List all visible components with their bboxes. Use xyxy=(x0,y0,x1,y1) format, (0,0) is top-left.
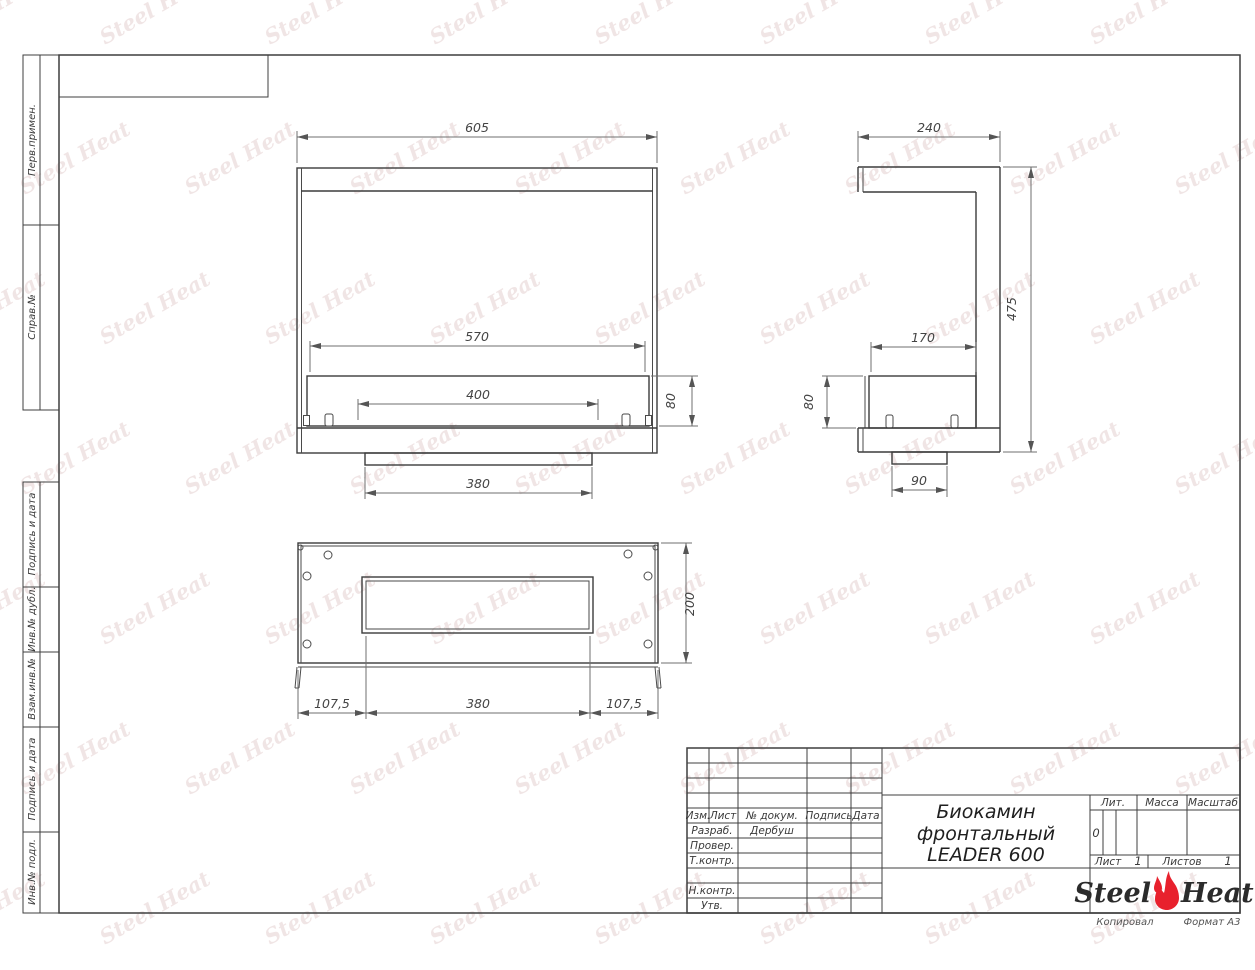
watermark-text: Steel Heat xyxy=(0,266,50,349)
dim-plan-offset-left: 107,5 xyxy=(314,696,350,711)
sheets-label: Листов xyxy=(1161,856,1201,868)
watermark-text: Steel Heat xyxy=(675,416,795,499)
row-razrab-label: Разраб. xyxy=(691,825,732,837)
side-burner-tray xyxy=(869,376,976,428)
mount-hole xyxy=(324,551,332,559)
watermark-text: Steel Heat xyxy=(755,566,875,649)
logo-heat: Heat xyxy=(1180,878,1254,909)
dim-plan-opening: 380 xyxy=(466,696,490,711)
watermark-text: Steel Heat xyxy=(0,566,50,649)
burner-clip xyxy=(886,415,893,428)
dim-side-height: 475 xyxy=(1004,297,1019,321)
col-izm: Изм. xyxy=(686,810,711,822)
watermark-text: Steel Heat xyxy=(345,716,465,799)
watermark-text: Steel Heat xyxy=(755,266,875,349)
frame-border xyxy=(59,55,1240,913)
watermark-text: Steel Heat xyxy=(345,116,465,199)
sheets-value: 1 xyxy=(1224,854,1231,868)
margin-box: Перв.примен. xyxy=(23,55,59,225)
dim-front-base: 380 xyxy=(466,476,490,491)
watermark-text: Steel Heat xyxy=(1170,116,1255,199)
margin-box: Справ.№ xyxy=(23,225,59,410)
dim-side-depth: 240 xyxy=(917,120,941,135)
watermark-text: Steel Heat xyxy=(590,266,710,349)
mount-hole xyxy=(624,550,632,558)
watermark-text: Steel Heat xyxy=(95,0,215,49)
watermark-text: Steel Heat xyxy=(675,716,795,799)
watermark-text: Steel Heat xyxy=(1005,716,1125,799)
dim-plan-offset-right: 107,5 xyxy=(606,696,642,711)
dim-front-tray-height: 80 xyxy=(663,393,678,409)
dim-side-tray-height: 80 xyxy=(801,394,816,410)
margin-box-label: Справ.№ xyxy=(27,294,38,339)
dim-front-inner-width: 570 xyxy=(465,329,489,344)
margin-box: Инв.№ дубл. xyxy=(23,586,59,652)
watermark-text: Steel Heat xyxy=(920,866,1040,949)
sheet-frame xyxy=(59,55,1240,913)
watermark-text: Steel Heat xyxy=(260,0,380,49)
sheet-label: Лист xyxy=(1094,856,1122,868)
watermark-text: Steel Heat xyxy=(755,866,875,949)
watermark-text: Steel Heat xyxy=(1250,0,1255,49)
doc-title-line2: фронтальный xyxy=(917,823,1055,845)
copied-label: Копировал xyxy=(1096,917,1154,928)
burner-clip xyxy=(951,415,958,428)
watermark-text: Steel Heat xyxy=(260,266,380,349)
row-nkontr-label: Н.контр. xyxy=(689,885,736,897)
watermark-text: Steel Heat xyxy=(590,866,710,949)
watermark-text: Steel Heat xyxy=(180,416,300,499)
col-podpis: Подпись xyxy=(805,810,852,822)
watermark-text: Steel Heat xyxy=(15,416,135,499)
watermark-text: Steel Heat xyxy=(180,716,300,799)
dim-side-tray-depth: 170 xyxy=(911,330,935,345)
burner-clip xyxy=(622,414,630,426)
mount-hole xyxy=(644,640,652,648)
watermark-text: Steel Heat xyxy=(1085,566,1205,649)
drawing-sheet: Steel HeatSteel HeatSteel HeatSteel Heat… xyxy=(0,0,1255,970)
doc-title-line3: LEADER 600 xyxy=(927,844,1045,866)
watermark-text: Steel Heat xyxy=(1170,416,1255,499)
frame-top-left-box xyxy=(59,55,268,97)
watermark-text: Steel Heat xyxy=(1005,116,1125,199)
margin-box: Взам.инв.№ xyxy=(23,652,59,727)
margin-box-label: Взам.инв.№ xyxy=(27,658,38,720)
watermark-text: Steel Heat xyxy=(425,866,545,949)
sheet-value: 1 xyxy=(1134,854,1141,868)
flame-icon-small xyxy=(1154,876,1162,893)
watermark-text: Steel Heat xyxy=(510,116,630,199)
lit-value: 0 xyxy=(1092,826,1099,840)
mount-hole xyxy=(303,572,311,580)
row-prover-label: Провер. xyxy=(690,840,734,852)
watermark-text: Steel Heat xyxy=(0,0,50,49)
watermark-text: Steel Heat xyxy=(425,566,545,649)
margin-box-label: Инв.№ подл. xyxy=(27,839,38,905)
dim-plan-depth: 200 xyxy=(682,592,697,616)
margin-box-label: Подпись и дата xyxy=(27,738,38,821)
col-list: Лист xyxy=(709,810,737,822)
dim-front-burner: 400 xyxy=(466,387,490,402)
doc-title-line1: Биокамин xyxy=(936,801,1035,823)
margin-box-label: Подпись и дата xyxy=(27,493,38,576)
col-data: Дата xyxy=(851,810,879,822)
mount-hole xyxy=(303,640,311,648)
watermark-text: Steel Heat xyxy=(95,266,215,349)
watermark-text: Steel Heat xyxy=(1170,716,1255,799)
margin-box-label: Перв.примен. xyxy=(27,104,38,176)
col-ndocum: № докум. xyxy=(745,810,798,822)
title-block: Изм. Лист № докум. Подпись Дата Разраб. … xyxy=(686,748,1255,913)
watermark-text: Steel Heat xyxy=(755,0,875,49)
watermark-text: Steel Heat xyxy=(675,116,795,199)
watermark-text: Steel Heat xyxy=(920,266,1040,349)
format-label: Формат А3 xyxy=(1184,917,1241,928)
watermark-text: Steel Heat xyxy=(425,0,545,49)
watermark-text: Steel Heat xyxy=(1250,566,1255,649)
mass-label: Масса xyxy=(1145,797,1178,809)
dim-side-base: 90 xyxy=(911,473,927,488)
scale-label: Масштаб xyxy=(1188,797,1238,809)
watermark-layer: Steel HeatSteel HeatSteel HeatSteel Heat… xyxy=(0,0,1255,949)
row-utv-label: Утв. xyxy=(701,900,723,912)
watermark-text: Steel Heat xyxy=(510,716,630,799)
watermark-text: Steel Heat xyxy=(1005,416,1125,499)
watermark-text: Steel Heat xyxy=(1085,266,1205,349)
watermark-text: Steel Heat xyxy=(95,566,215,649)
mount-hole xyxy=(644,572,652,580)
watermark-text: Steel Heat xyxy=(1250,266,1255,349)
lit-label: Лит. xyxy=(1100,797,1125,809)
row-razrab-name: Дербуш xyxy=(749,825,794,837)
logo-steel: Steel xyxy=(1074,878,1151,909)
watermark-text: Steel Heat xyxy=(920,0,1040,49)
watermark-text: Steel Heat xyxy=(95,866,215,949)
margin-box: Инв.№ подл. xyxy=(23,832,59,913)
watermark-text: Steel Heat xyxy=(920,566,1040,649)
watermark-text: Steel Heat xyxy=(180,116,300,199)
row-tkontr-label: Т.контр. xyxy=(689,855,735,867)
burner-clip xyxy=(325,414,333,426)
dim-front-width: 605 xyxy=(465,120,489,135)
watermark-text: Steel Heat xyxy=(590,0,710,49)
watermark-text: Steel Heat xyxy=(1085,0,1205,49)
plan-view: 200 107,5 380 107,5 xyxy=(295,543,697,719)
margin-box: Подпись и дата xyxy=(23,482,59,587)
watermark-text: Steel Heat xyxy=(260,866,380,949)
margin-box-label: Инв.№ дубл. xyxy=(26,586,38,651)
watermark-text: Steel Heat xyxy=(0,866,50,949)
watermark-text: Steel Heat xyxy=(840,716,960,799)
